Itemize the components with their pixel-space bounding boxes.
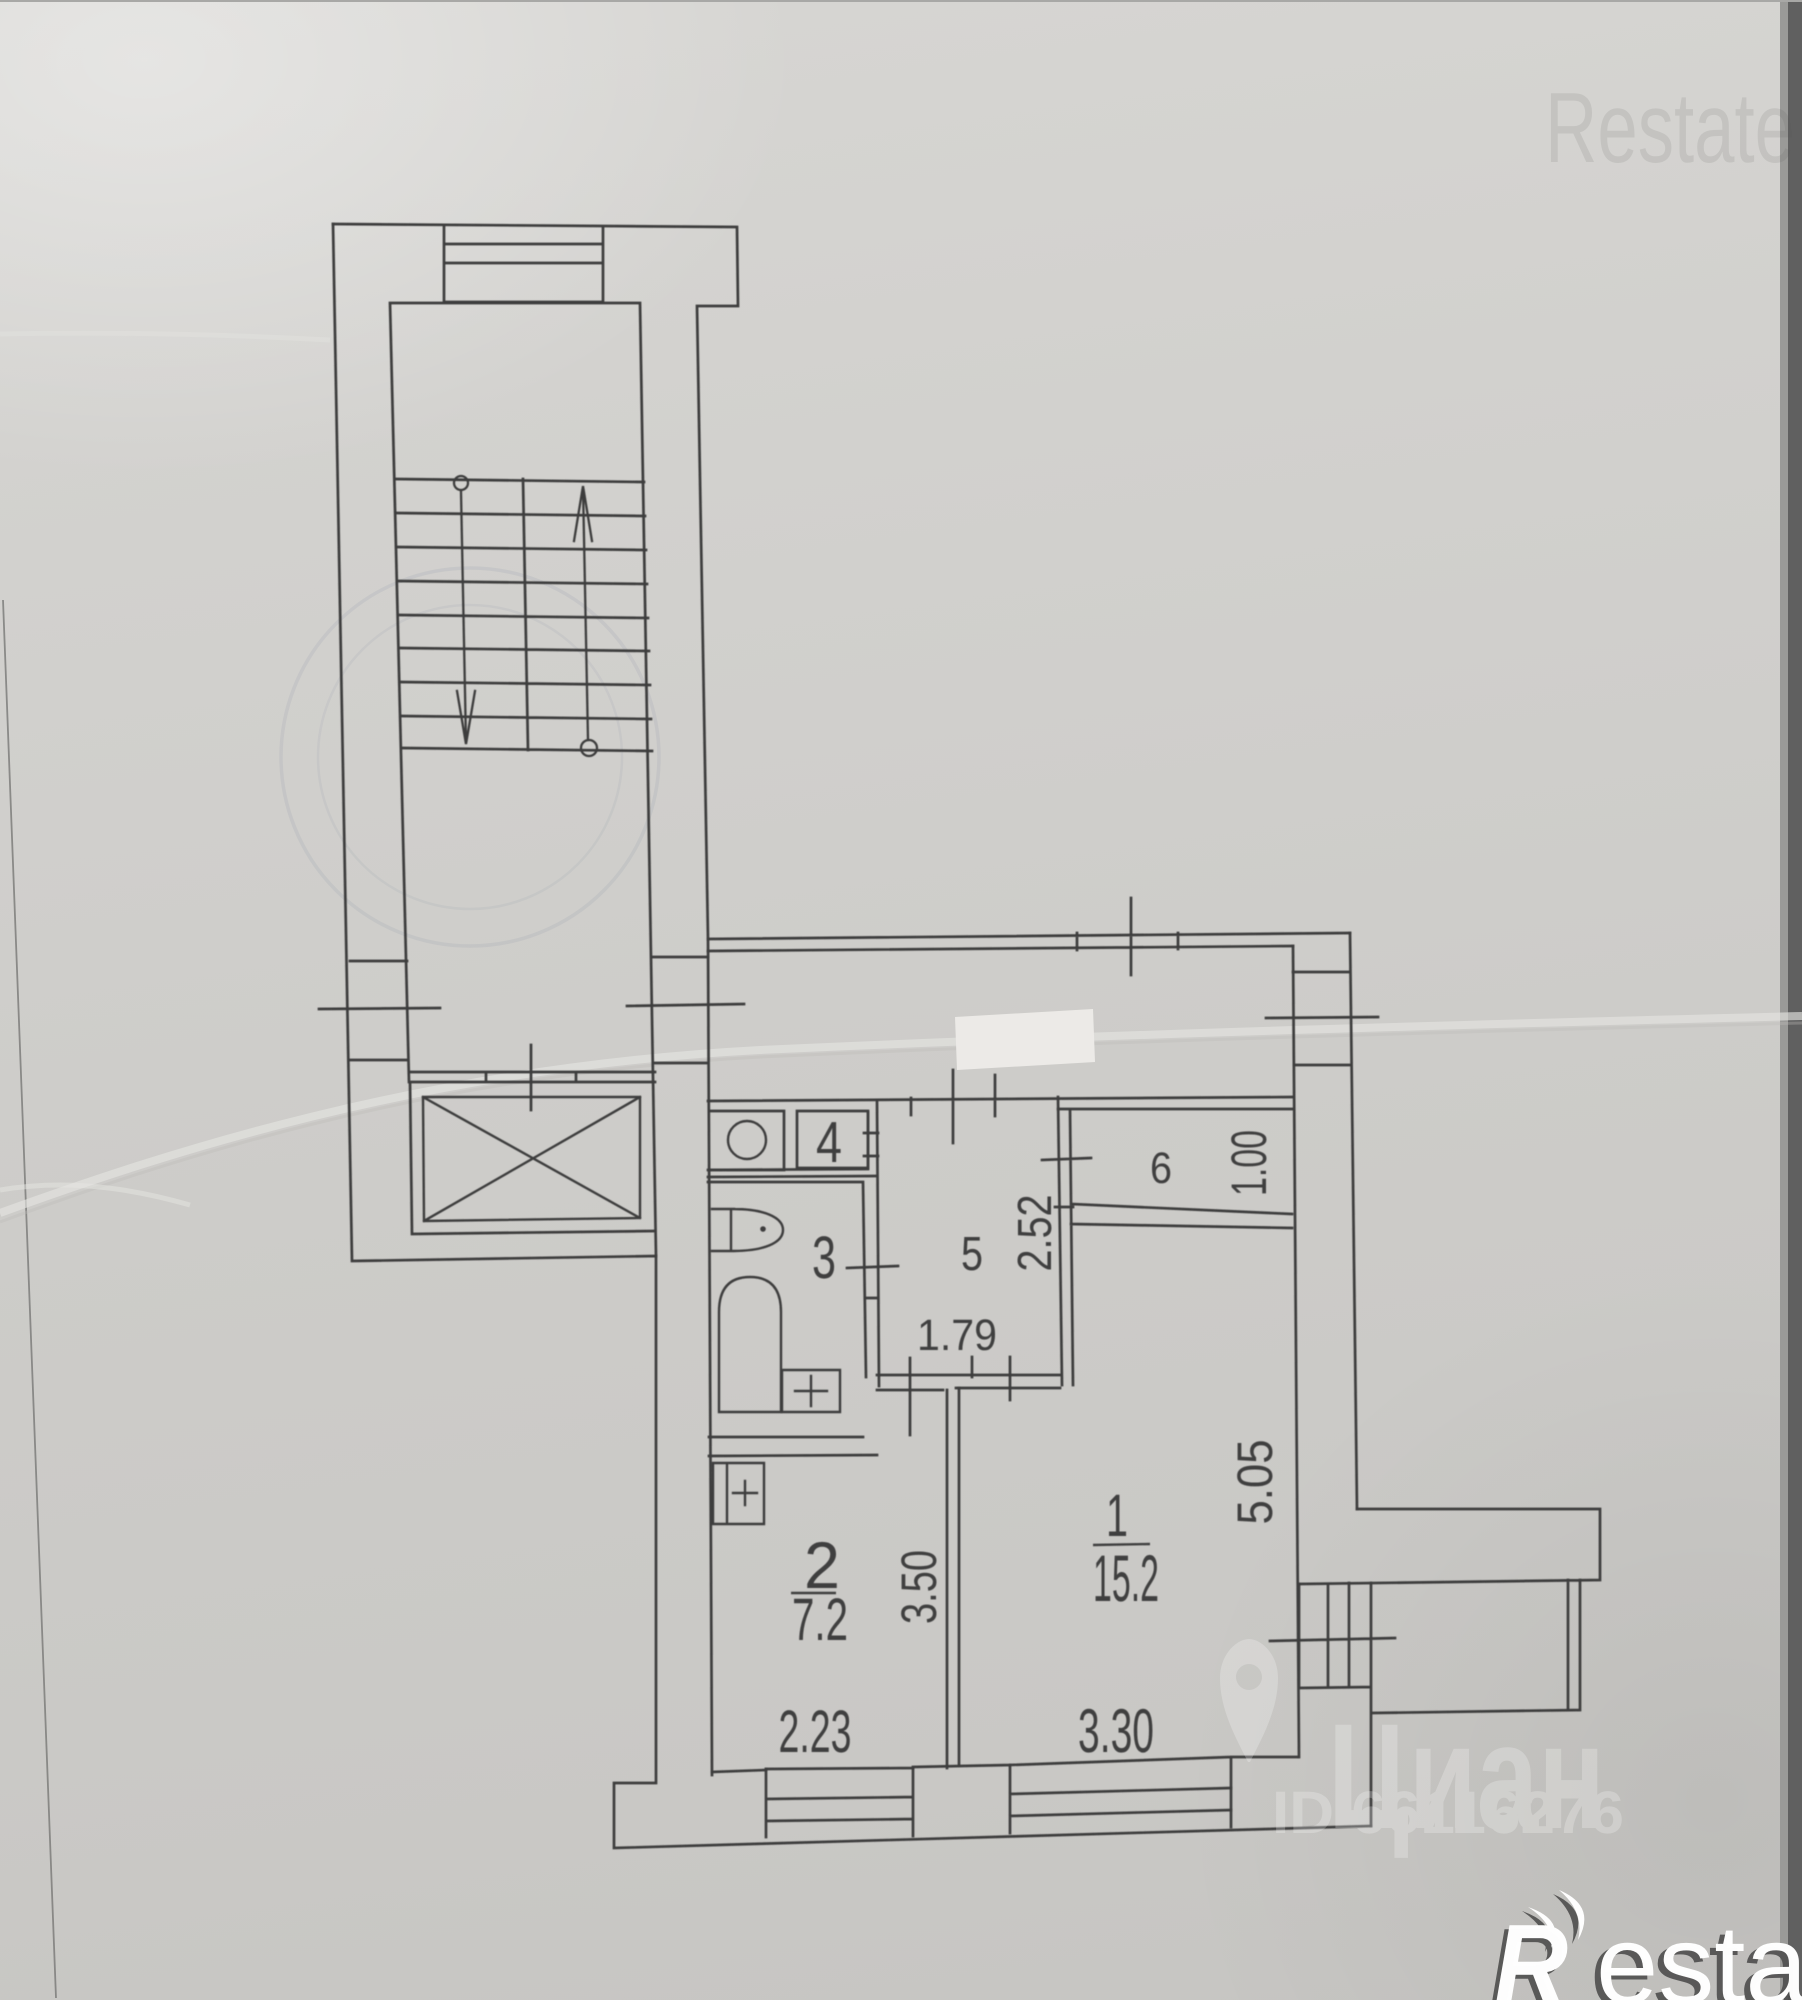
svg-text:15.2: 15.2 [1093, 1541, 1159, 1615]
svg-text:2.23: 2.23 [779, 1698, 852, 1765]
svg-text:estate: estate [1596, 1902, 1802, 2000]
svg-text:6: 6 [1150, 1144, 1172, 1193]
svg-text:5: 5 [961, 1228, 983, 1281]
svg-text:4: 4 [816, 1110, 842, 1175]
svg-text:7.2: 7.2 [792, 1586, 848, 1653]
svg-text:1.00: 1.00 [1221, 1130, 1277, 1196]
svg-text:Restate: Restate [1545, 72, 1795, 184]
svg-text:3.30: 3.30 [1078, 1697, 1154, 1766]
svg-text:1.79: 1.79 [917, 1311, 997, 1360]
svg-text:1: 1 [1106, 1482, 1128, 1549]
svg-text:3.50: 3.50 [891, 1550, 947, 1624]
svg-text:2.52: 2.52 [1009, 1195, 1062, 1272]
svg-text:ID 66116276: ID 66116276 [1272, 1779, 1624, 1846]
svg-text:5.05: 5.05 [1227, 1440, 1283, 1525]
svg-text:3: 3 [812, 1224, 836, 1291]
svg-text:R: R [1494, 1900, 1568, 2000]
